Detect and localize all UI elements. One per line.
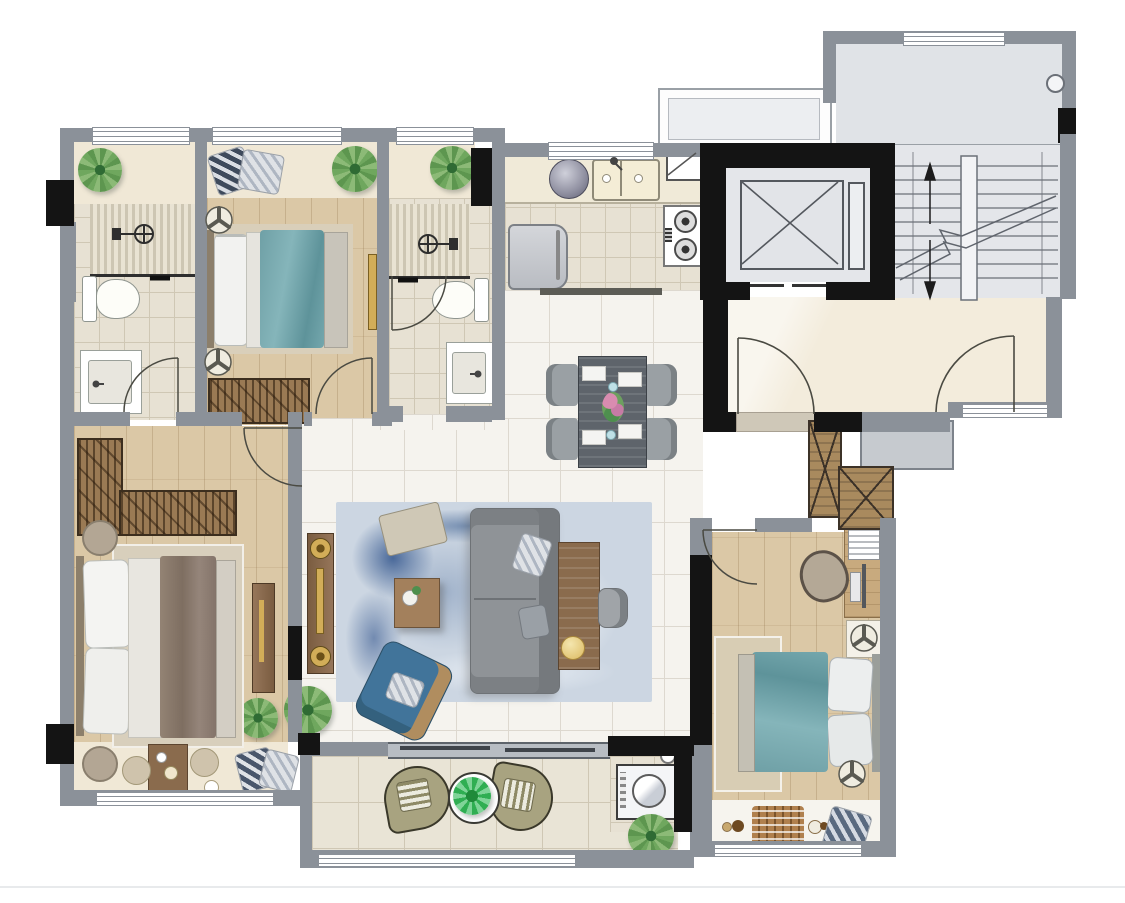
stair-stringer <box>961 156 977 300</box>
line-art-overlay <box>0 0 1125 903</box>
bedroom3-door <box>703 530 757 584</box>
fan-stool-icon <box>839 761 865 787</box>
page-divider-line <box>0 886 1125 888</box>
entry-door <box>738 338 814 414</box>
fan-stool-icon <box>205 349 231 375</box>
faucet-icon <box>94 158 623 387</box>
bedroom2-door <box>316 358 372 414</box>
stair-fire-door <box>936 336 1014 412</box>
corner-sink-diagonal <box>668 153 696 175</box>
shower-head-icon <box>113 225 153 243</box>
fan-stool-icon <box>851 625 877 651</box>
bathroom2-door <box>392 276 446 330</box>
shower-head-icon <box>419 235 457 253</box>
elevator-x-icon <box>742 182 838 264</box>
floor-plan-canvas <box>0 0 1125 903</box>
bathroom1-door <box>124 358 178 412</box>
fan-stool-icon <box>206 207 232 233</box>
master-bedroom-door <box>244 428 302 486</box>
